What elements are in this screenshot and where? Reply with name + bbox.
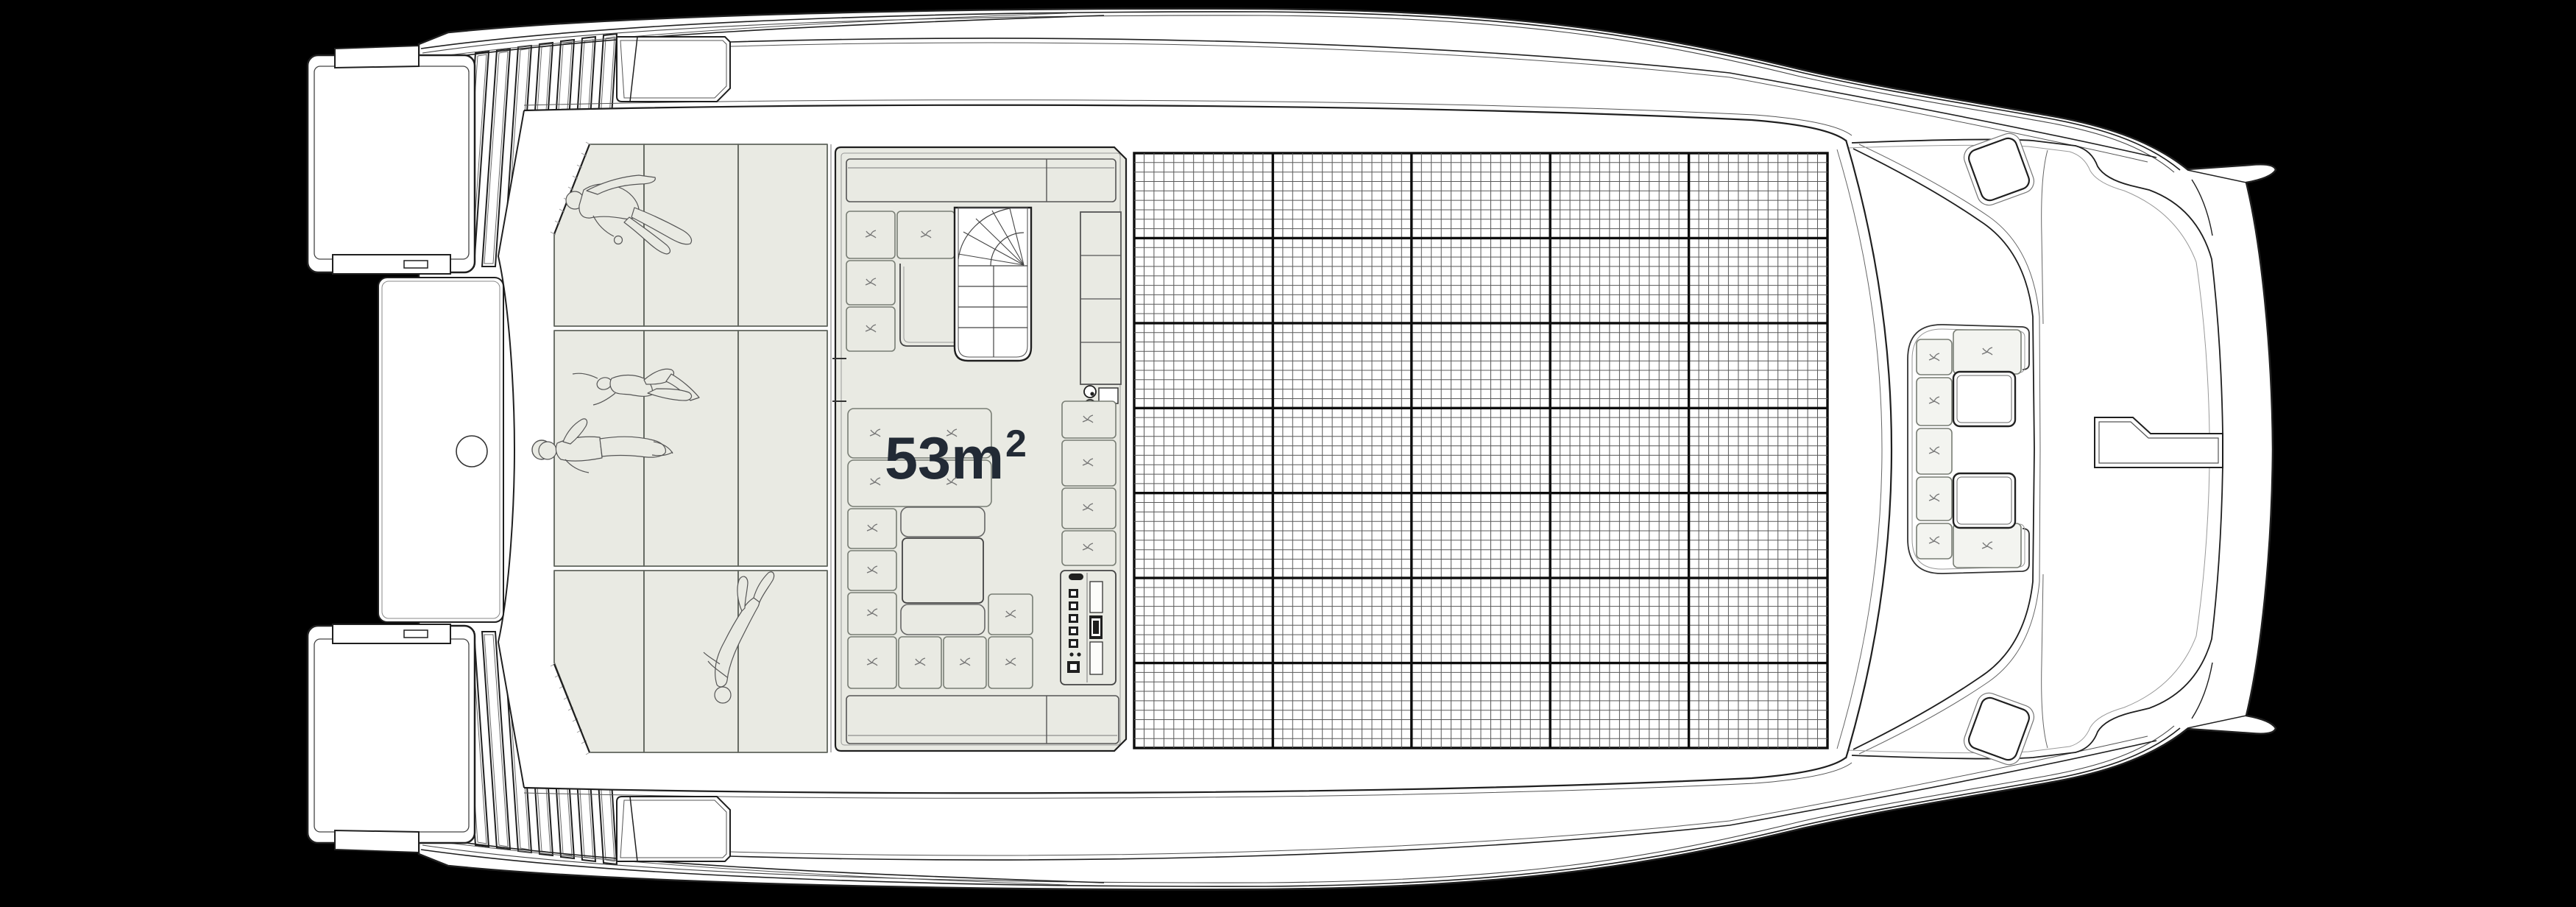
svg-text:2: 2 [1005,423,1027,465]
svg-text:53m: 53m [885,426,1004,492]
